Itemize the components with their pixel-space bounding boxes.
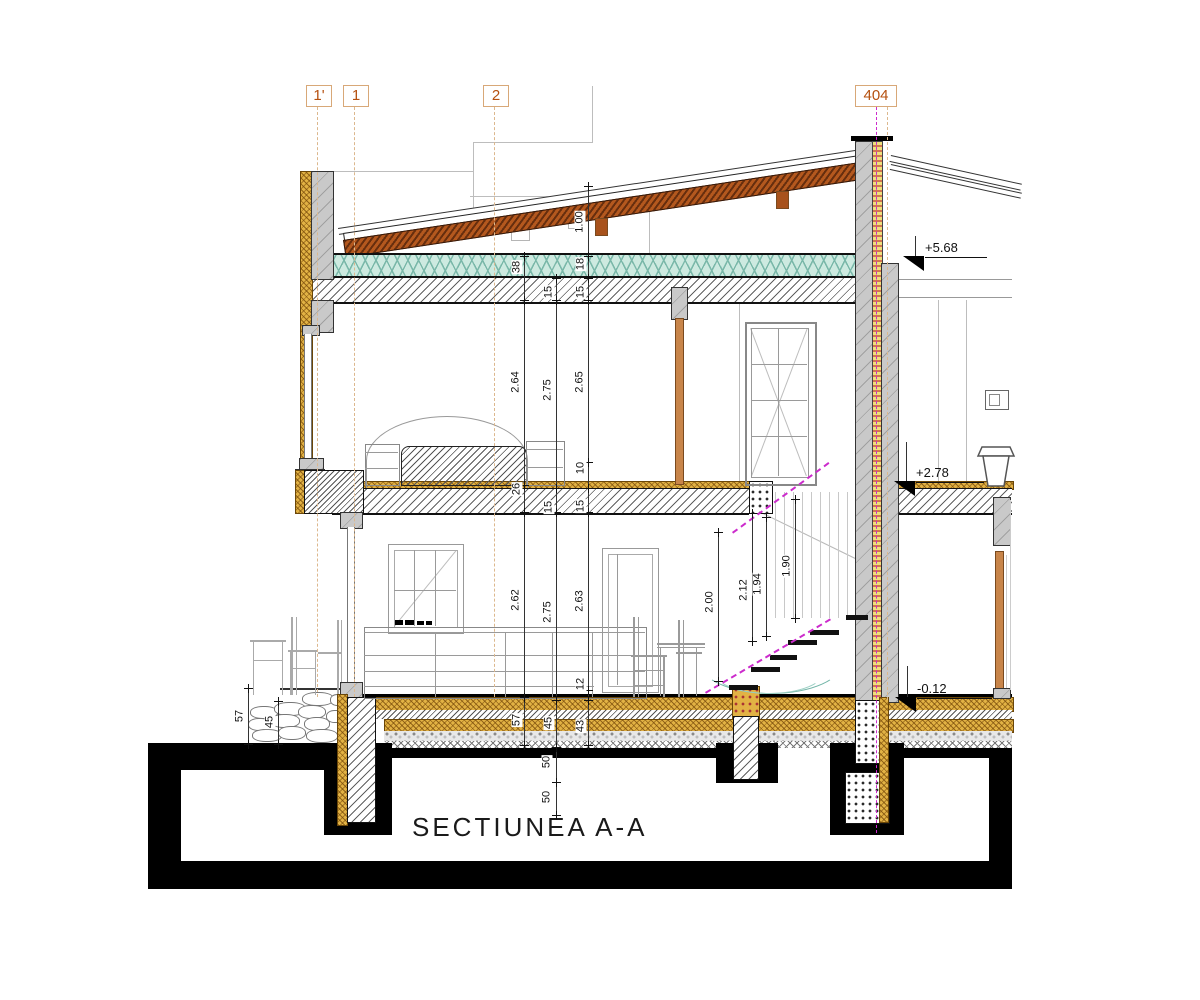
level-leader [907,666,908,697]
chair-back [678,620,680,697]
dim-line [718,532,719,681]
stair-tread [751,667,780,672]
counter-item [405,620,414,625]
level-leader [906,442,907,481]
window-muntin [751,436,807,437]
pier-stair [733,716,759,780]
level-leader [915,236,916,256]
dim-c6: 12 [576,677,587,691]
dim-a3: 2.62 [511,588,522,611]
dim-stair-0: 2.00 [705,590,716,613]
dim-b4: 45 [544,716,555,730]
chair-rail [633,685,663,686]
level-ground: -0.12 [917,681,992,699]
dim-c3: 10 [576,461,587,475]
dim-line [278,701,279,744]
upper-elevation-window-inner [751,328,809,478]
window-muntin [414,550,415,626]
dim-stair-2: 1.94 [753,572,764,595]
axis-line-2 [494,107,495,697]
background-edge [473,142,592,143]
ground-elevation-window-inner [394,550,458,628]
dim-a1: 2.64 [511,370,522,393]
door-leaf-section [675,318,684,485]
roof-purlin [595,218,608,236]
window-muntin [394,590,456,591]
dim-tick [244,684,253,693]
nightstand [365,444,400,486]
level-triangle [903,256,924,271]
counter-item [417,621,424,625]
level-triangle [895,697,916,712]
dim-stair-1: 2.12 [739,578,750,601]
dim-roof: 1.00 [575,210,586,233]
chair-seat [631,655,667,657]
flush-plate-inner [989,394,1000,406]
dim-c5: 2.63 [575,589,586,612]
terrace-chair-seat [318,652,342,654]
counter-divider [552,632,553,697]
terrace-chair-leg [290,651,291,695]
terrace-chair-leg [315,651,316,695]
dim-b2: 15 [544,500,555,514]
terrace-chair-back [291,617,293,695]
stone [306,729,338,743]
axis-label-1p: 1' [306,85,332,107]
left-wall-parapet [311,171,334,280]
dim-line [766,517,767,636]
rear-window-lintel [993,497,1011,546]
chair-back [683,620,684,697]
terrace-chair-seat [288,650,318,652]
axis-line-1 [354,107,355,697]
dim-b3: 2.75 [543,600,554,623]
terrace-chair-rail [290,668,316,669]
dim-b5: 50 [542,755,553,769]
dim-a4: 57 [512,713,523,727]
dim-tick [520,693,529,702]
rear-window-frame [995,551,1004,690]
section-drawing: +5.68 +2.78 -0.12 1.00 38 2.64 [0,0,1200,1000]
chair-rail [633,670,663,671]
back-wall-line [739,302,740,482]
dim-tick [244,740,253,749]
dim-tick [762,632,771,641]
nightstand-shelf [365,452,398,453]
axis-label-2: 2 [483,85,509,107]
terrace-table-leg [282,641,283,695]
dim-a0: 38 [512,260,523,274]
terrace-chair-back [296,617,297,695]
nightstand-shelf [365,468,398,469]
dim-tick [552,743,561,752]
dim-terrace-1: 45 [265,715,276,729]
dim-tick [552,484,561,493]
gravel-layer [384,731,1012,741]
drawing-title: SECTIUNEA A-A [412,812,648,843]
dim-line [524,252,525,746]
chair-leg [663,657,665,697]
window-muntin [751,400,807,401]
background-ceiling-line [897,297,1012,298]
counter-divider [505,632,506,697]
door-stile [617,554,618,685]
dim-tick [552,696,561,705]
dim-tick [791,495,800,504]
counter-divider [435,632,436,697]
dim-line [795,499,796,618]
stair-tread [729,685,758,690]
background-edge [592,86,593,143]
axis-label-404: 404 [855,85,897,107]
dim-a2: 26 [512,482,523,496]
dim-tick [584,484,593,493]
rear-window-sill [993,688,1011,699]
dim-tick [520,508,529,517]
table-top [657,643,705,645]
dim-c0: 18 [576,257,587,271]
upper-floor-slab [332,488,749,515]
dim-c1: 15 [576,285,587,299]
stair-tread [810,630,839,635]
rear-window-glazing [1006,555,1007,688]
background-wall-line [966,300,967,481]
foundation-band-right [989,743,1012,889]
perimeter-insulation-right [879,697,889,823]
bed-mattress [401,446,527,486]
dim-tick [584,274,593,283]
nightstand-shelf [526,449,563,450]
terrace-table-leg [253,641,254,695]
dim-tick [791,614,800,623]
roof-purlin [776,191,789,209]
terrace-table-top [250,640,286,642]
pier-left [347,697,376,823]
ground-door-inner [608,554,653,687]
stair-tread [846,615,868,620]
axis-label-1: 1 [343,85,369,107]
dim-b6: 50 [542,790,553,804]
stair-tread [770,655,797,660]
dim-tick [552,811,561,820]
nightstand-shelf [526,467,563,468]
level-floor1: +2.78 [916,465,984,483]
dim-c7: 43 [576,719,587,733]
counter-line [364,686,594,687]
dim-tick [748,509,757,518]
upper-window-glazing [304,334,312,458]
slab-edge-block [304,470,364,514]
dim-tick [552,274,561,283]
dim-tick [274,697,283,706]
dim-tick [584,696,593,705]
dim-tick [714,677,723,686]
dim-c4: 15 [576,499,587,513]
dim-line [248,688,249,744]
background-ceiling-line [897,279,1012,280]
window-muntin [778,328,779,476]
dim-stair-3: 1.90 [782,554,793,577]
dim-tick [520,296,529,305]
rear-wall-line [1010,500,1011,690]
terrace-chair-back [337,620,339,695]
dim-b1: 2.75 [543,378,554,401]
roof-rafter [343,163,859,258]
dim-tick [584,182,593,191]
nightstand [526,441,565,486]
dim-tick [520,741,529,750]
table-top [657,647,705,648]
dim-tick [552,778,561,787]
compacted-fill-layer [384,741,1012,748]
axis-line-404 [887,107,888,700]
dim-tick [584,741,593,750]
level-triangle [894,481,915,496]
dim-tick [274,740,283,749]
counter-item [426,621,432,625]
window-muntin [751,364,807,365]
dim-line [556,278,557,816]
section-trace-line [876,107,877,833]
door-lintel [671,287,688,320]
dim-terrace-0: 57 [235,709,246,723]
chair-seat [676,652,702,654]
window-muntin [435,550,436,626]
table-leg [696,648,697,696]
background-wall-line [938,300,939,481]
dim-tick [714,528,723,537]
dim-tick [748,637,757,646]
terrace-table-shelf [253,660,283,661]
axis-line-1p [317,107,318,697]
dim-tick [762,513,771,522]
table-leg [660,648,661,696]
pier-right [855,700,881,764]
foundation-band-bottom [148,861,1012,889]
level-roof: +5.68 [925,240,987,258]
dim-c2: 2.65 [575,370,586,393]
counter-item [395,620,403,625]
dim-b0: 15 [544,285,555,299]
stone [278,726,306,740]
